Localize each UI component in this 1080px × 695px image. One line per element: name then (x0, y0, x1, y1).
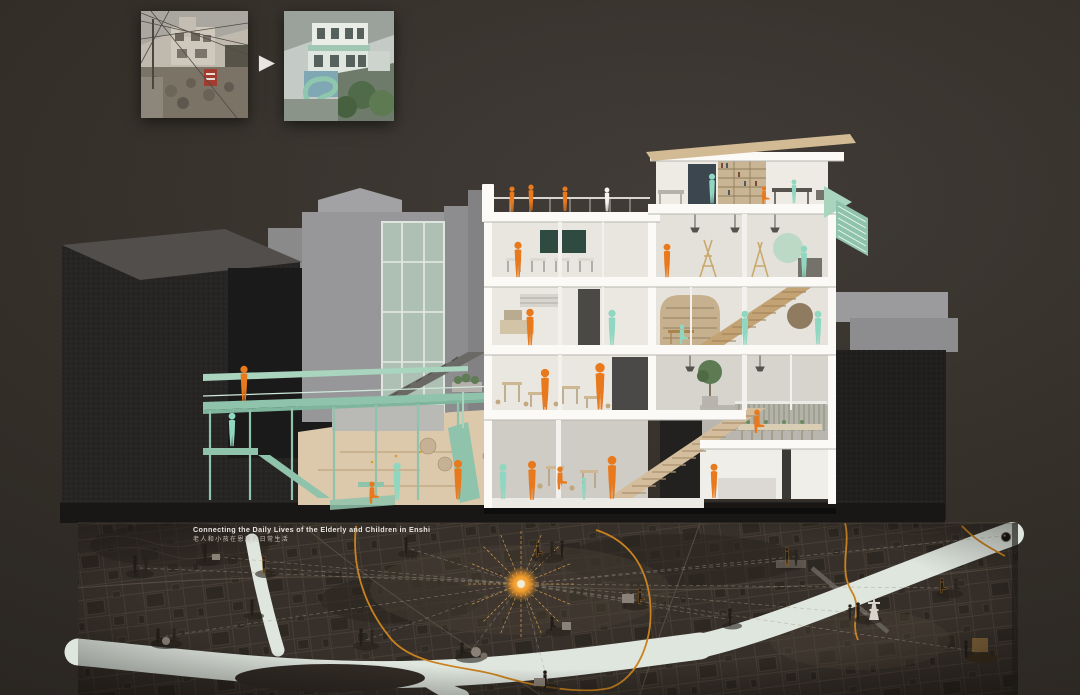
grey-terrace-platform (332, 405, 444, 431)
map-subtitle: 老人和小孩在恩施的日常生活 (193, 535, 289, 543)
transform-arrow-icon: ▶ (252, 48, 282, 78)
presentation-board: ▶ (0, 0, 1080, 695)
dark-context-mass-right (836, 350, 946, 520)
photo-before-renovation (141, 11, 248, 118)
photo-before-art (141, 11, 248, 118)
photo-after-art (284, 11, 394, 121)
dark-doorway (578, 289, 600, 345)
map-title: Connecting the Daily Lives of the Elderl… (193, 525, 430, 534)
before-after-strip: ▶ (0, 0, 430, 140)
blackboard (540, 230, 586, 253)
photo-after-renovation (284, 11, 394, 121)
roof-terrace-railing (494, 198, 650, 212)
circular-opening (787, 303, 813, 329)
map-pin (1002, 533, 1011, 542)
site-map-board: Connecting the Daily Lives of the Elderl… (78, 523, 1018, 695)
bookshelf (718, 160, 766, 204)
long-table (738, 424, 822, 430)
main-building-section (482, 134, 856, 514)
